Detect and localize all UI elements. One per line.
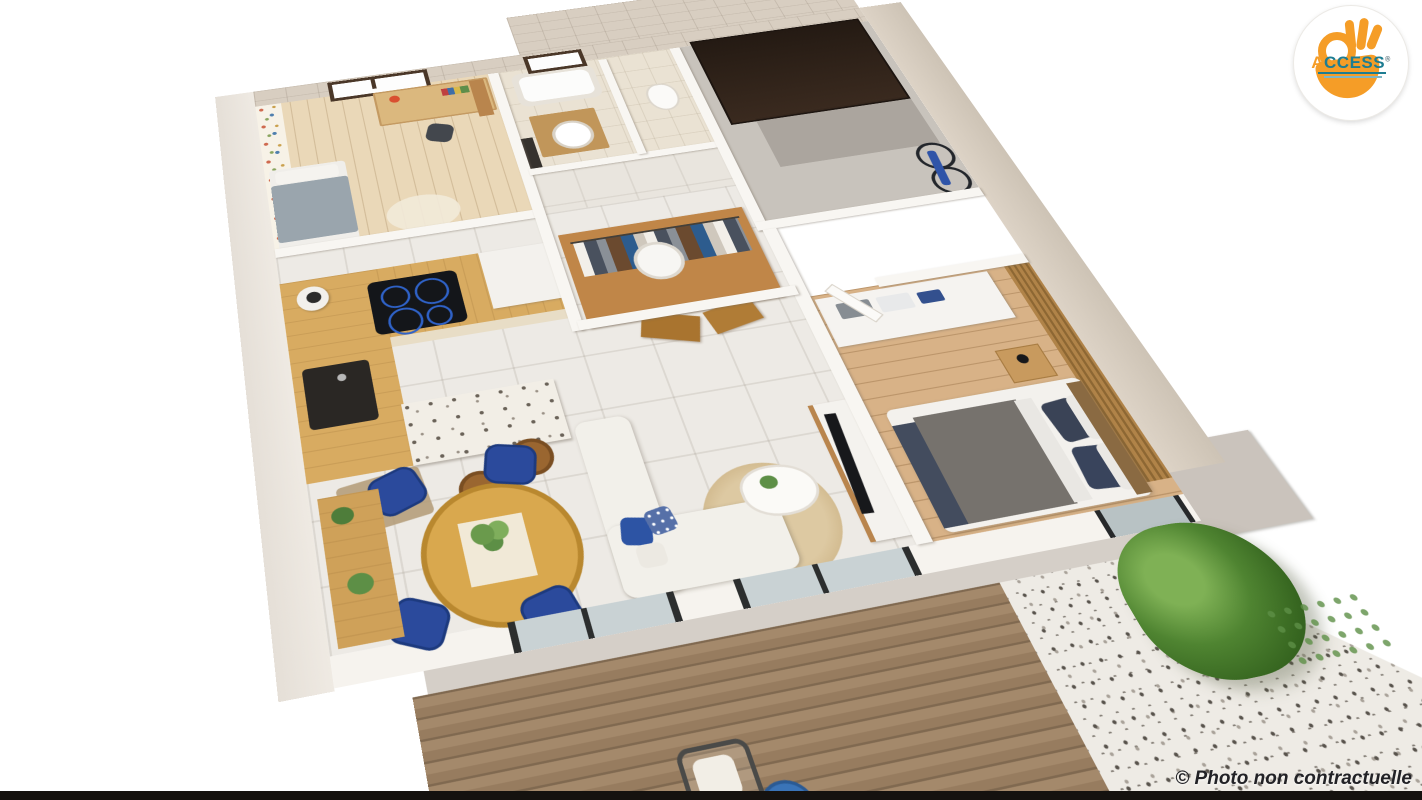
floor-plan-plane	[230, 5, 1230, 695]
access-logo-badge: ACCESS®	[1294, 6, 1408, 120]
logo-letter-a: A	[1311, 53, 1324, 72]
dining-chair-2	[483, 443, 537, 485]
logo-finger-3-icon	[1365, 23, 1383, 50]
logo-underline-light	[1324, 76, 1382, 78]
bed-blanket	[271, 175, 359, 243]
copyright-watermark: © Photo non contractuelle	[1175, 768, 1412, 790]
logo-text: ACCESS®	[1294, 53, 1408, 73]
kitchen-sink	[302, 359, 380, 431]
logo-registered-mark: ®	[1385, 56, 1391, 63]
logo-finger-1-icon	[1344, 20, 1356, 51]
floor-plan-render: ACCESS® © Photo non contractuelle	[0, 0, 1422, 800]
desk-chair	[425, 123, 455, 143]
letterbox-bar	[0, 791, 1422, 800]
logo-underline	[1318, 72, 1386, 74]
logo-letters-ccess: CCESS	[1324, 53, 1385, 72]
